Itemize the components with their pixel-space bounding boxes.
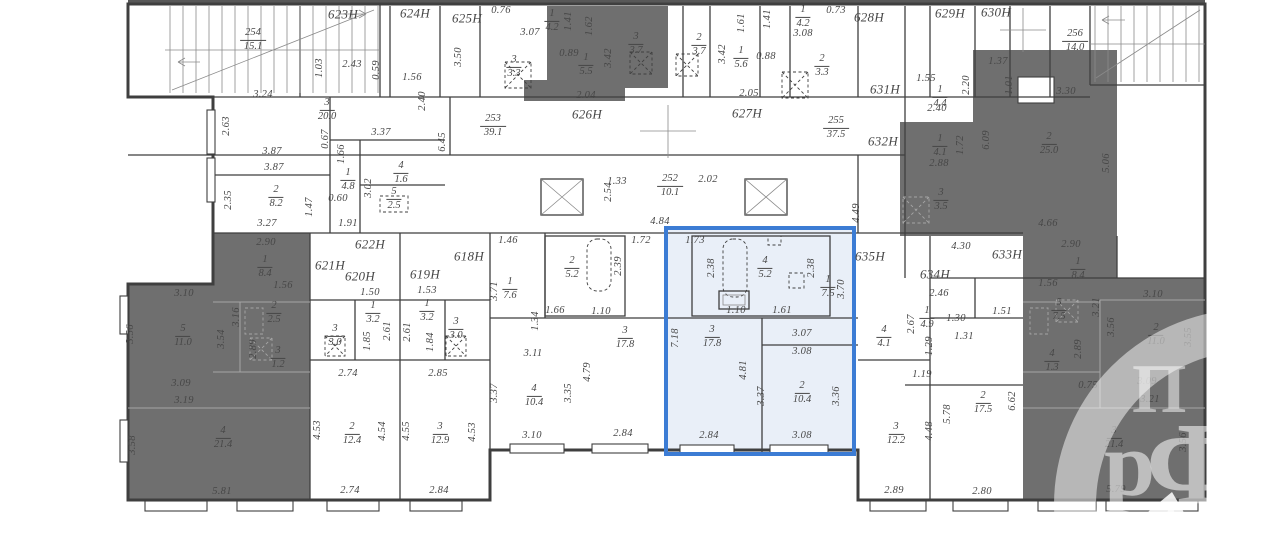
dark-unit-right (1023, 236, 1205, 500)
elevator-shafts (541, 179, 787, 215)
stair-left-treads (165, 6, 380, 93)
stair-right-arrow (1102, 16, 1125, 24)
floor-plan-page: 623Н624Н625Н626Н627Н628Н629Н630Н631Н632Н… (0, 0, 1280, 549)
window-bay (1018, 77, 1054, 103)
dark-unit-top-right (900, 50, 1117, 236)
stair-left-arrows (178, 10, 366, 66)
selected-unit-highlight[interactable] (664, 226, 856, 456)
floor-plan-drawing (0, 0, 1280, 549)
bathroom-618 (545, 236, 625, 316)
dark-unit-left (128, 233, 310, 500)
dark-unit-626 (524, 6, 668, 101)
